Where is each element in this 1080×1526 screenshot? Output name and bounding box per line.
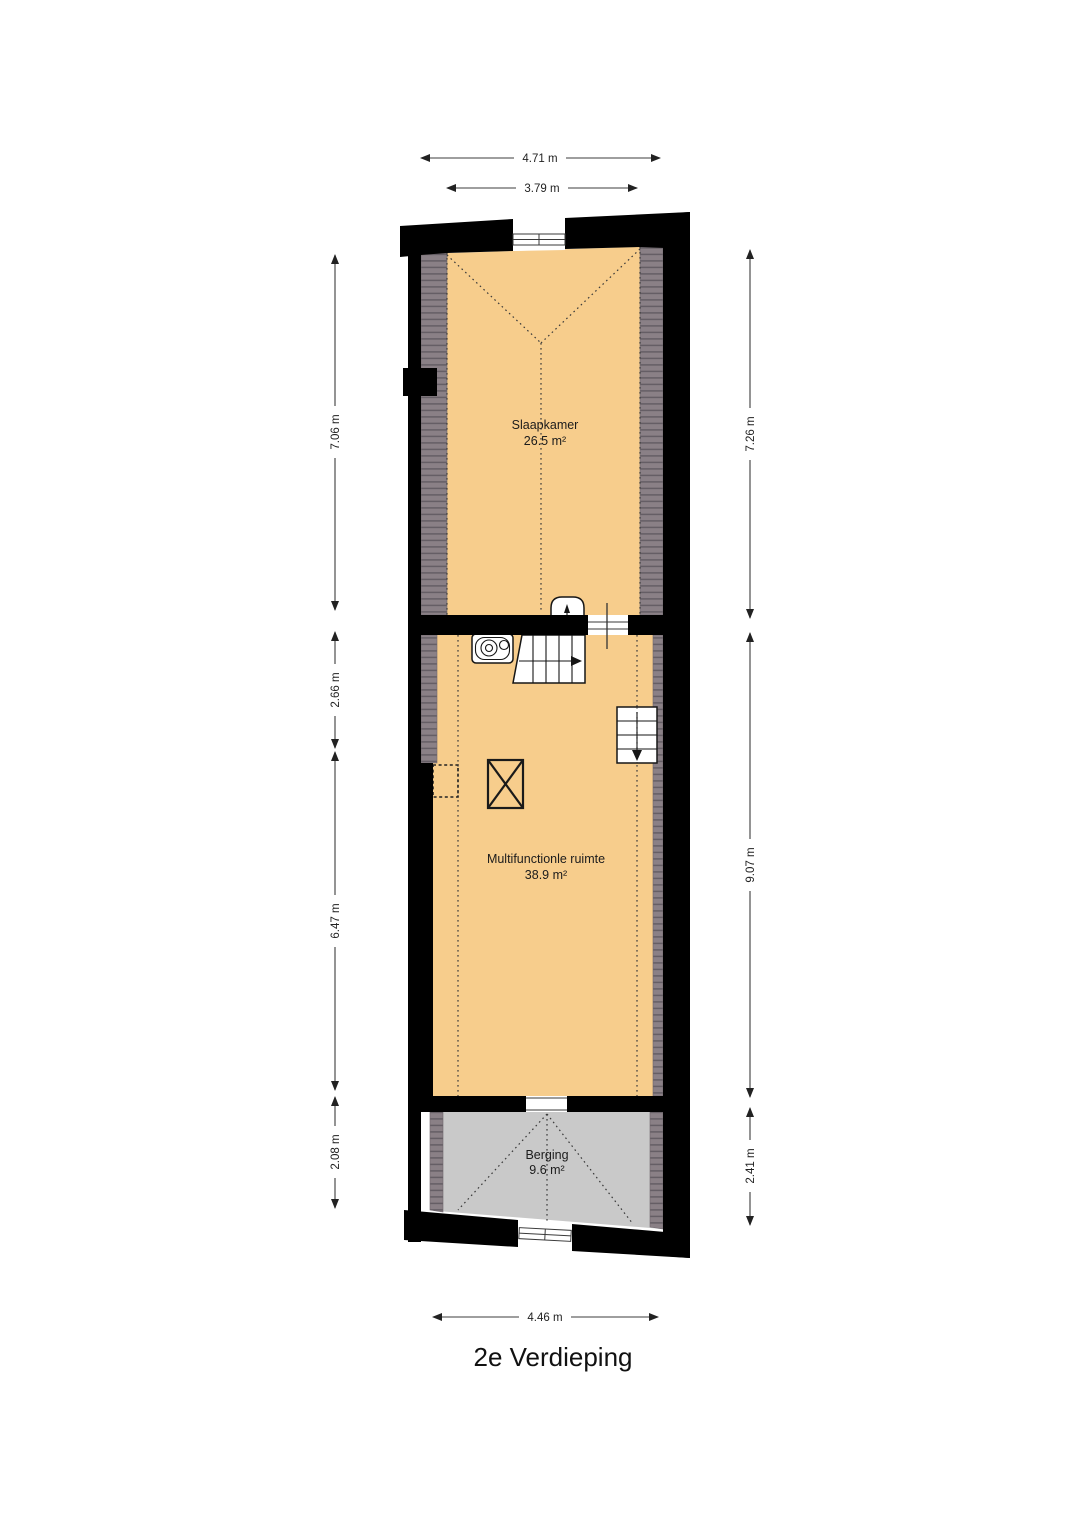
dim-right-2: 9.07 m (743, 633, 757, 1097)
dim-top-inner: 3.79 m (447, 181, 637, 195)
dim-left-2: 2.66 m (328, 632, 342, 748)
bottom-window (518, 1220, 572, 1251)
floorplan-svg: Slaapkamer 26.5 m² Multifunctionle ruimt… (0, 0, 1080, 1526)
floorplan-page: Slaapkamer 26.5 m² Multifunctionle ruimt… (0, 0, 1080, 1526)
right-wall (663, 212, 690, 1258)
storage-right-slope-strip (650, 1112, 663, 1229)
dim-left-3: 6.47 m (328, 752, 342, 1090)
storage-area: 9.6 m² (529, 1163, 564, 1177)
dim-bottom: 4.46 m (433, 1310, 658, 1324)
storage-wall-right (567, 1096, 663, 1112)
left-wall-chimney (403, 368, 437, 396)
svg-text:4.71 m: 4.71 m (522, 153, 557, 165)
svg-text:9.07 m: 9.07 m (745, 847, 757, 882)
storage-door-opening (526, 1096, 567, 1112)
bedroom-label: Slaapkamer (512, 418, 579, 432)
dim-top-outer: 4.71 m (421, 151, 660, 165)
dim-right-3: 2.41 m (743, 1108, 757, 1225)
bedroom-right-slope-strip (640, 246, 663, 615)
multifunctional-right-slope-strip (653, 635, 663, 1096)
multifunctional-left-slope-strip (421, 635, 437, 763)
dim-left-4: 2.08 m (328, 1097, 342, 1208)
mid-wall-right (628, 615, 663, 635)
dim-right-1: 7.26 m (743, 250, 757, 618)
dim-left-1: 7.06 m (328, 255, 342, 610)
left-wall-thick-lower (421, 763, 433, 1096)
storage-wall-left (421, 1096, 526, 1112)
svg-text:2.41 m: 2.41 m (745, 1148, 757, 1183)
bedroom-left-slope-strip (421, 253, 447, 615)
boiler-icon (472, 634, 513, 663)
svg-text:7.26 m: 7.26 m (745, 416, 757, 451)
multifunctional-label: Multifunctionle ruimte (487, 852, 605, 866)
svg-text:3.79 m: 3.79 m (524, 183, 559, 195)
bedroom-area: 26.5 m² (524, 434, 566, 448)
svg-text:7.06 m: 7.06 m (330, 414, 342, 449)
multifunctional-area: 38.9 m² (525, 868, 567, 882)
svg-text:2.08 m: 2.08 m (330, 1134, 342, 1169)
svg-text:6.47 m: 6.47 m (330, 903, 342, 938)
stairs-up-icon (513, 635, 585, 683)
floor-title: 2e Verdieping (473, 1342, 632, 1372)
svg-text:4.46 m: 4.46 m (527, 1312, 562, 1324)
svg-text:2.66 m: 2.66 m (330, 672, 342, 707)
left-wall (408, 250, 421, 1242)
stairs-down-icon (617, 707, 657, 763)
mid-wall-left (408, 615, 588, 635)
top-window (513, 218, 565, 251)
storage-label: Berging (525, 1148, 568, 1162)
storage-left-slope-strip (430, 1112, 443, 1212)
